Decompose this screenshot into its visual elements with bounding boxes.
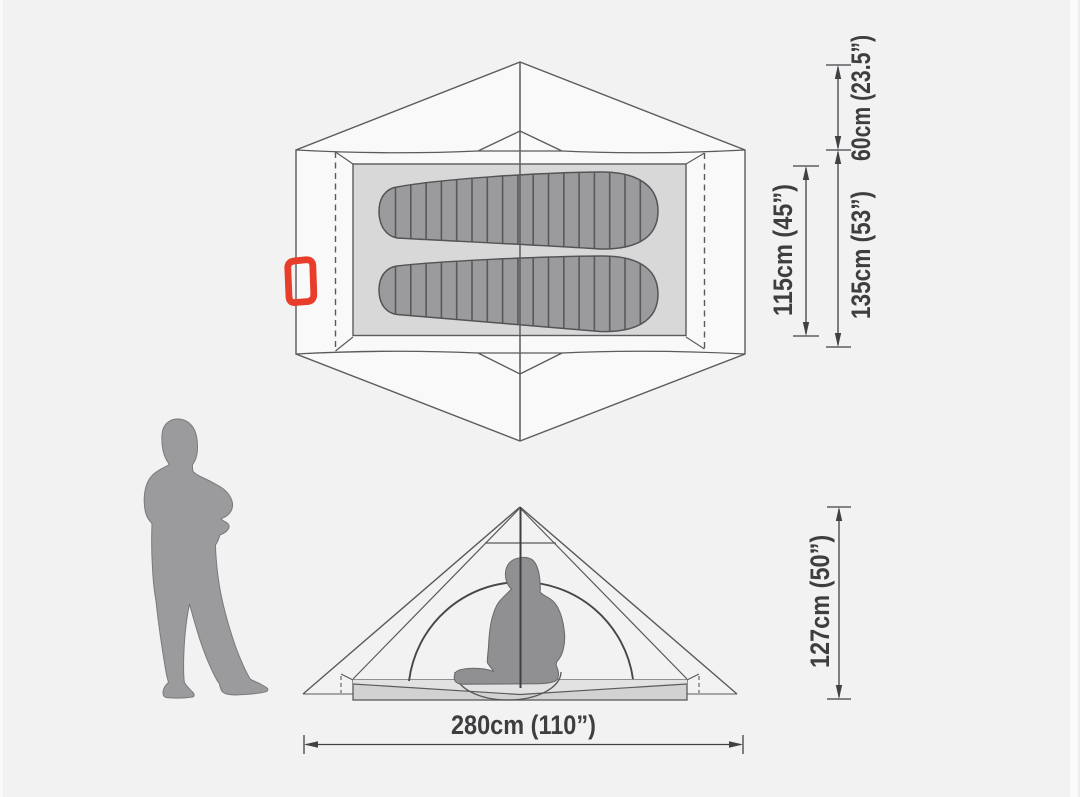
svg-text:127cm (50”): 127cm (50”): [806, 535, 836, 668]
svg-text:115cm (45”): 115cm (45”): [769, 184, 799, 316]
svg-text:135cm (53”): 135cm (53”): [846, 191, 876, 319]
svg-text:60cm (23.5”): 60cm (23.5”): [847, 35, 877, 161]
svg-text:280cm (110”): 280cm (110”): [451, 711, 596, 741]
